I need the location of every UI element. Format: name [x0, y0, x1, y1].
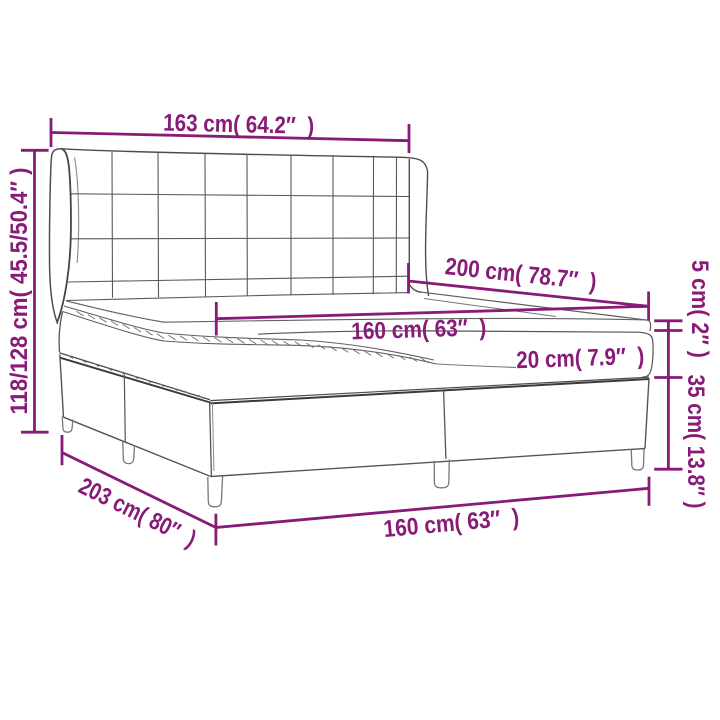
svg-text:20 cm( 7.9″ ): 20 cm( 7.9″ ): [516, 343, 645, 374]
svg-text:163 cm( 64.2″ ): 163 cm( 64.2″ ): [163, 109, 315, 139]
svg-text:118/128 cm( 45.5/50.4″ ): 118/128 cm( 45.5/50.4″ ): [6, 167, 33, 414]
svg-text:35 cm( 13.8″ ): 35 cm( 13.8″ ): [682, 375, 709, 509]
svg-text:160 cm( 63″ ): 160 cm( 63″ ): [351, 314, 487, 345]
svg-text:5 cm( 2″ ): 5 cm( 2″ ): [686, 260, 713, 358]
